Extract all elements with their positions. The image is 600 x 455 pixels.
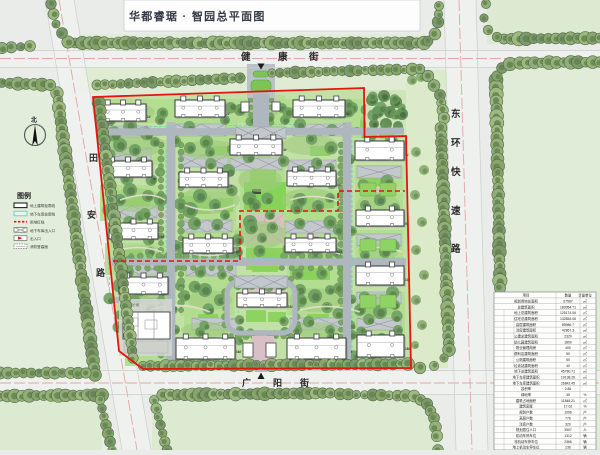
svg-text:消防登高面: 消防登高面 [30, 244, 48, 249]
svg-text:11848.21: 11848.21 [561, 399, 575, 403]
svg-text:康: 康 [277, 51, 288, 63]
svg-text:42867.3: 42867.3 [562, 329, 574, 333]
svg-text:2#: 2# [226, 112, 230, 116]
svg-text:路: 路 [96, 267, 106, 278]
svg-text:%: % [583, 393, 586, 397]
svg-text:%: % [583, 405, 586, 409]
svg-text:50: 50 [566, 358, 570, 362]
svg-text:3#: 3# [346, 112, 350, 116]
svg-text:125174.06: 125174.06 [560, 311, 576, 315]
svg-text:12#: 12# [337, 250, 343, 254]
svg-text:非机动车停车位: 非机动车停车位 [514, 439, 538, 444]
svg-text:便利店建筑面积: 便利店建筑面积 [514, 351, 538, 356]
svg-text:10#: 10# [159, 235, 165, 239]
svg-text:规划户数: 规划户数 [519, 410, 533, 415]
svg-text:8#: 8# [337, 183, 341, 187]
svg-text:180954.71: 180954.71 [560, 305, 576, 309]
svg-text:776: 776 [565, 417, 571, 421]
svg-text:洋房建筑面积: 洋房建筑面积 [516, 328, 537, 333]
svg-text:机动车停车位: 机动车停车位 [516, 433, 537, 438]
svg-text:地下车库建筑面积: 地下车库建筑面积 [512, 380, 540, 385]
svg-text:2320: 2320 [564, 335, 572, 339]
svg-text:北: 北 [31, 116, 37, 124]
svg-text:洋房户数: 洋房户数 [519, 421, 533, 426]
svg-text:320: 320 [565, 422, 571, 426]
svg-text:计量单位: 计量单位 [578, 293, 592, 298]
svg-text:出入口: 出入口 [30, 236, 41, 241]
svg-text:速: 速 [451, 205, 461, 217]
svg-text:住宅总建筑面积: 住宅总建筑面积 [514, 316, 538, 321]
svg-text:3507: 3507 [564, 428, 572, 432]
svg-text:地下车库轮廓线: 地下车库轮廓线 [30, 211, 56, 216]
svg-text:400: 400 [565, 346, 571, 350]
svg-text:7#: 7# [229, 184, 233, 188]
svg-text:街: 街 [299, 377, 309, 388]
svg-text:2366: 2366 [564, 440, 572, 444]
svg-text:绿地率: 绿地率 [521, 392, 532, 397]
svg-text:东: 东 [451, 108, 461, 120]
svg-text:132854.06: 132854.06 [560, 317, 576, 321]
svg-text:50: 50 [566, 352, 570, 356]
svg-text:1#: 1# [147, 115, 151, 119]
svg-text:户: 户 [583, 421, 586, 426]
svg-text:67587: 67587 [563, 299, 573, 303]
svg-text:19138.26: 19138.26 [561, 376, 575, 380]
svg-text:建筑密度: 建筑密度 [519, 404, 533, 409]
svg-text:45780.71: 45780.71 [561, 370, 575, 374]
svg-text:快: 快 [451, 166, 461, 178]
svg-text:容积率: 容积率 [521, 386, 532, 391]
svg-text:用地红线: 用地红线 [30, 220, 45, 225]
svg-text:地上机动车停车位: 地上机动车停车位 [512, 445, 540, 450]
svg-text:项目: 项目 [523, 294, 530, 298]
svg-text:236: 236 [565, 446, 571, 450]
svg-text:公厕建筑面积: 公厕建筑面积 [516, 357, 537, 362]
svg-text:1312: 1312 [564, 434, 572, 438]
svg-text:地下车库出入口: 地下车库出入口 [30, 228, 56, 233]
svg-text:数量: 数量 [565, 293, 572, 298]
svg-text:规划用地总面积: 规划用地总面积 [514, 298, 538, 303]
svg-text:幼儿园建筑面积: 幼儿园建筑面积 [514, 339, 538, 344]
svg-text:户: 户 [583, 410, 586, 415]
svg-text:地下总建筑面积: 地下总建筑面积 [514, 369, 538, 374]
svg-text:安: 安 [87, 209, 96, 220]
svg-text:1096: 1096 [564, 411, 572, 415]
svg-text:广: 广 [242, 377, 251, 388]
svg-text:16#: 16# [236, 350, 242, 354]
svg-text:规划居住人口: 规划居住人口 [516, 427, 536, 432]
svg-text:图例: 图例 [17, 191, 31, 200]
svg-text:建筑占地面积: 建筑占地面积 [516, 398, 537, 403]
svg-text:26842.45: 26842.45 [561, 381, 575, 385]
svg-text:环: 环 [451, 138, 461, 149]
svg-text:华都睿琚 · 智园总平面图: 华都睿琚 · 智园总平面图 [129, 9, 266, 23]
svg-text:街: 街 [308, 51, 319, 63]
svg-text:11#: 11# [234, 250, 239, 254]
svg-text:地上建筑轮廓线: 地上建筑轮廓线 [30, 203, 56, 208]
svg-text:40: 40 [566, 364, 570, 368]
svg-text:田: 田 [89, 153, 98, 163]
svg-text:4#: 4# [283, 148, 287, 152]
svg-text:物业管理用房: 物业管理用房 [516, 345, 537, 350]
svg-text:高层建筑面积: 高层建筑面积 [516, 322, 537, 327]
svg-text:35: 35 [566, 393, 570, 397]
svg-text:公建总建筑面积: 公建总建筑面积 [514, 334, 538, 339]
svg-text:地下车库建筑面积: 地下车库建筑面积 [512, 375, 540, 380]
svg-text:户: 户 [583, 416, 586, 421]
svg-text:健: 健 [241, 51, 251, 63]
svg-text:垃圾站建筑面积: 垃圾站建筑面积 [514, 363, 538, 368]
svg-text:总建筑面积: 总建筑面积 [518, 304, 536, 309]
svg-text:地上总建筑面积: 地上总建筑面积 [514, 310, 538, 315]
svg-text:阳: 阳 [273, 378, 282, 388]
svg-text:路: 路 [451, 243, 461, 255]
svg-text:6#: 6# [153, 177, 157, 181]
svg-text:2.86: 2.86 [565, 387, 572, 391]
svg-text:17.02: 17.02 [564, 405, 573, 409]
svg-text:1800: 1800 [564, 340, 572, 344]
svg-text:85986.7: 85986.7 [562, 323, 574, 327]
svg-text:高层户数: 高层户数 [519, 416, 533, 421]
